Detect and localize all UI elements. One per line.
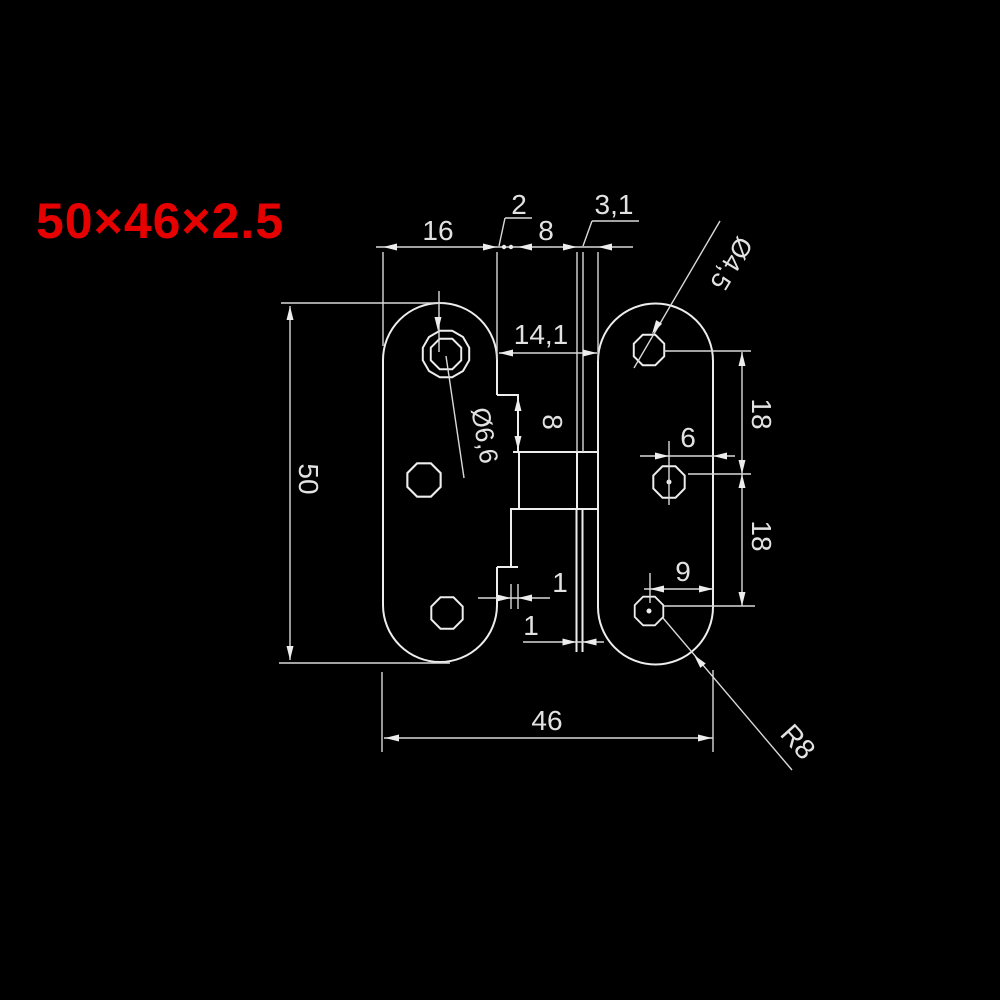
dim-label-50: 50 [293,463,324,494]
dim-label-6: 6 [680,422,696,453]
dimension-pin-gap-left: 1 [478,567,568,609]
hinge-technical-drawing: 16 2 8 3,1 14,1 8 50 [0,0,1000,1000]
dim-label-8-center: 8 [537,414,568,430]
leader-corner-radius: R8 [663,618,822,770]
dim-label-46: 46 [531,705,562,736]
dim-label-14-1: 14,1 [514,319,569,350]
right-plate [598,304,713,665]
dimension-top-chain: 16 2 8 3,1 [376,189,639,346]
dim-label-2: 2 [511,189,527,220]
hole-mid-left [407,463,440,496]
dimension-overall-width: 46 [382,670,713,752]
dimension-pin-gap-right: 1 [523,610,604,646]
dim-label-16: 16 [422,215,453,246]
dim-label-18-lower: 18 [746,520,777,551]
countersunk-hole-top-left [423,331,469,377]
hole-bottom-left [431,597,462,628]
dim-label-dia-6-6: Ø6,6 [465,405,504,466]
dim-label-1-left: 1 [552,567,568,598]
drawing-canvas: 50×46×2.5 [0,0,1000,1000]
leader-hole-dia-6-6: Ø6,6 [435,291,505,478]
dimension-height-50: 50 [279,303,450,663]
dim-label-8-top: 8 [538,215,554,246]
hole-bottom-right [635,597,664,626]
dim-label-18-upper: 18 [746,398,777,429]
dimension-knuckle-step: 8 [515,397,569,450]
dim-label-1-right: 1 [523,610,539,641]
hinge-knuckle-column [497,252,598,652]
dim-label-3-1: 3,1 [595,189,634,220]
dim-label-dia-4-5: Ø4,5 [704,232,759,296]
leader-hole-dia-4-5: Ø4,5 [634,221,759,368]
dim-label-9: 9 [675,556,691,587]
dimension-mid-hole-offset: 6 [640,422,735,505]
